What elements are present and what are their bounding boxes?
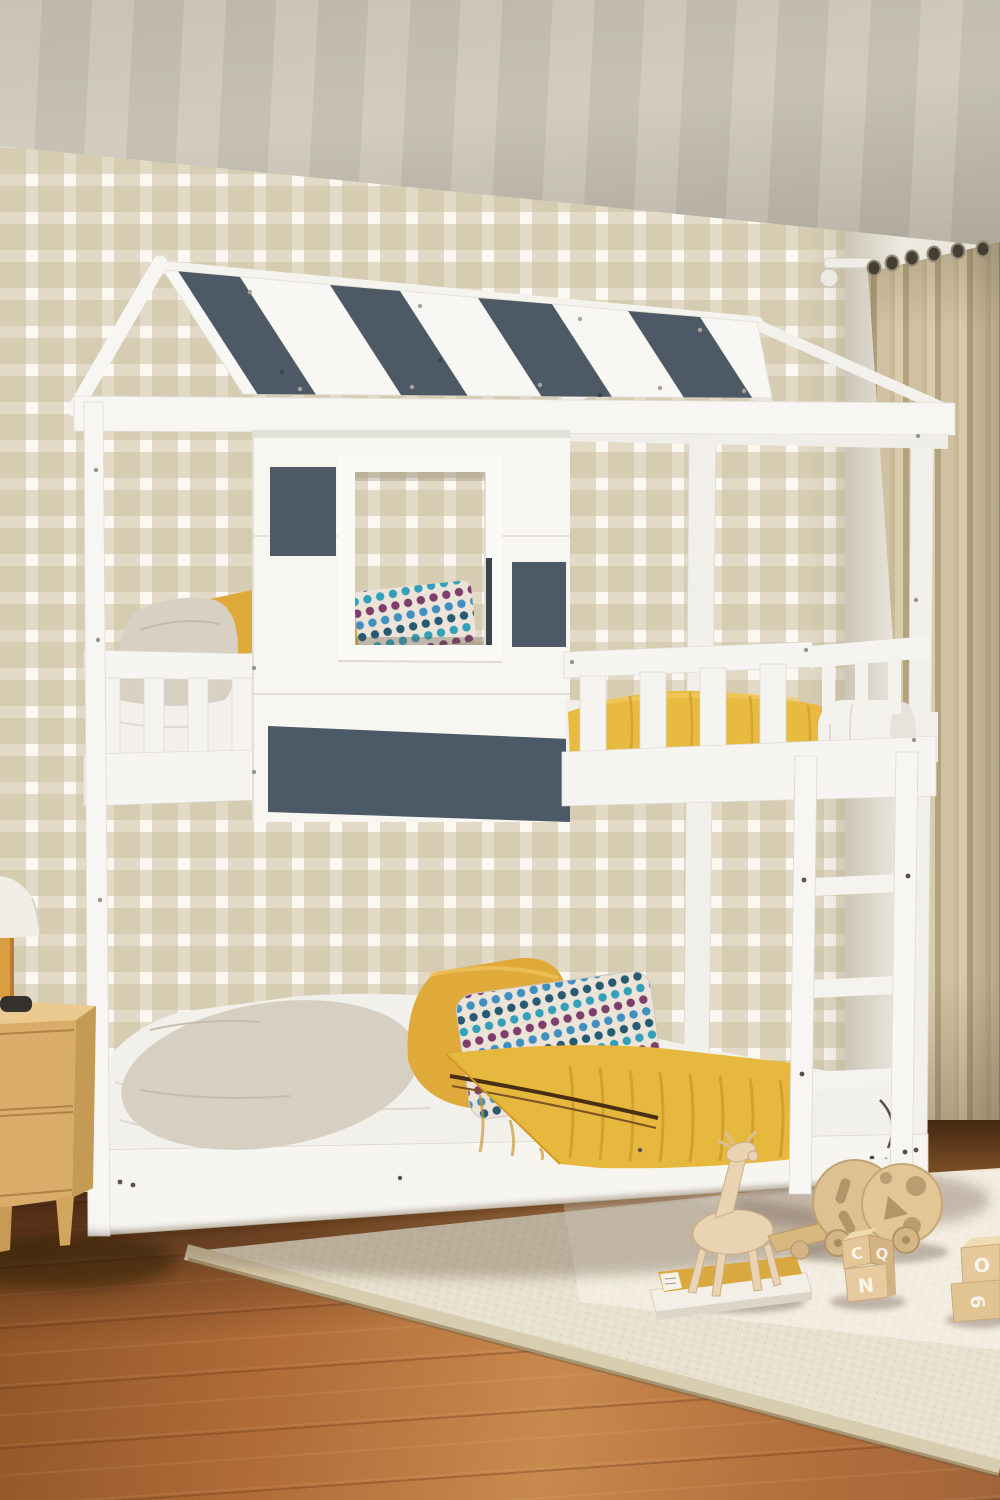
curtain-grommets [868, 242, 990, 276]
bedroom-scene: C Q N O 6 [0, 0, 1000, 1500]
block-letter-6: 6 [966, 1295, 989, 1310]
slate-square-left [270, 467, 336, 556]
slate-band-bottom [268, 726, 570, 822]
upper-left-rail-top [84, 650, 255, 680]
lamp-shade [0, 876, 40, 938]
upper-left-rail-bottom [84, 750, 255, 806]
upper-bunk-left [84, 588, 268, 806]
front-eave-beam [74, 396, 955, 435]
upper-right-corner-slats [822, 656, 901, 724]
window-inner-shadow-strip [486, 558, 492, 645]
slate-square-right [512, 562, 566, 647]
back-gable-rafter-right [753, 323, 941, 407]
rod-finial [820, 269, 838, 287]
upper-bunk-right [562, 636, 938, 806]
block-letter-n: N [857, 1274, 875, 1297]
block-letter-o: O [973, 1254, 991, 1277]
front-gable-rafter [75, 263, 160, 409]
block-letter-c: C [850, 1243, 864, 1263]
lamp-base [0, 996, 32, 1012]
scene-artwork: C Q N O 6 [0, 0, 1000, 1500]
window-pillows [353, 580, 484, 654]
table-lamp [0, 876, 40, 1012]
block-letter-q: Q [875, 1245, 889, 1264]
